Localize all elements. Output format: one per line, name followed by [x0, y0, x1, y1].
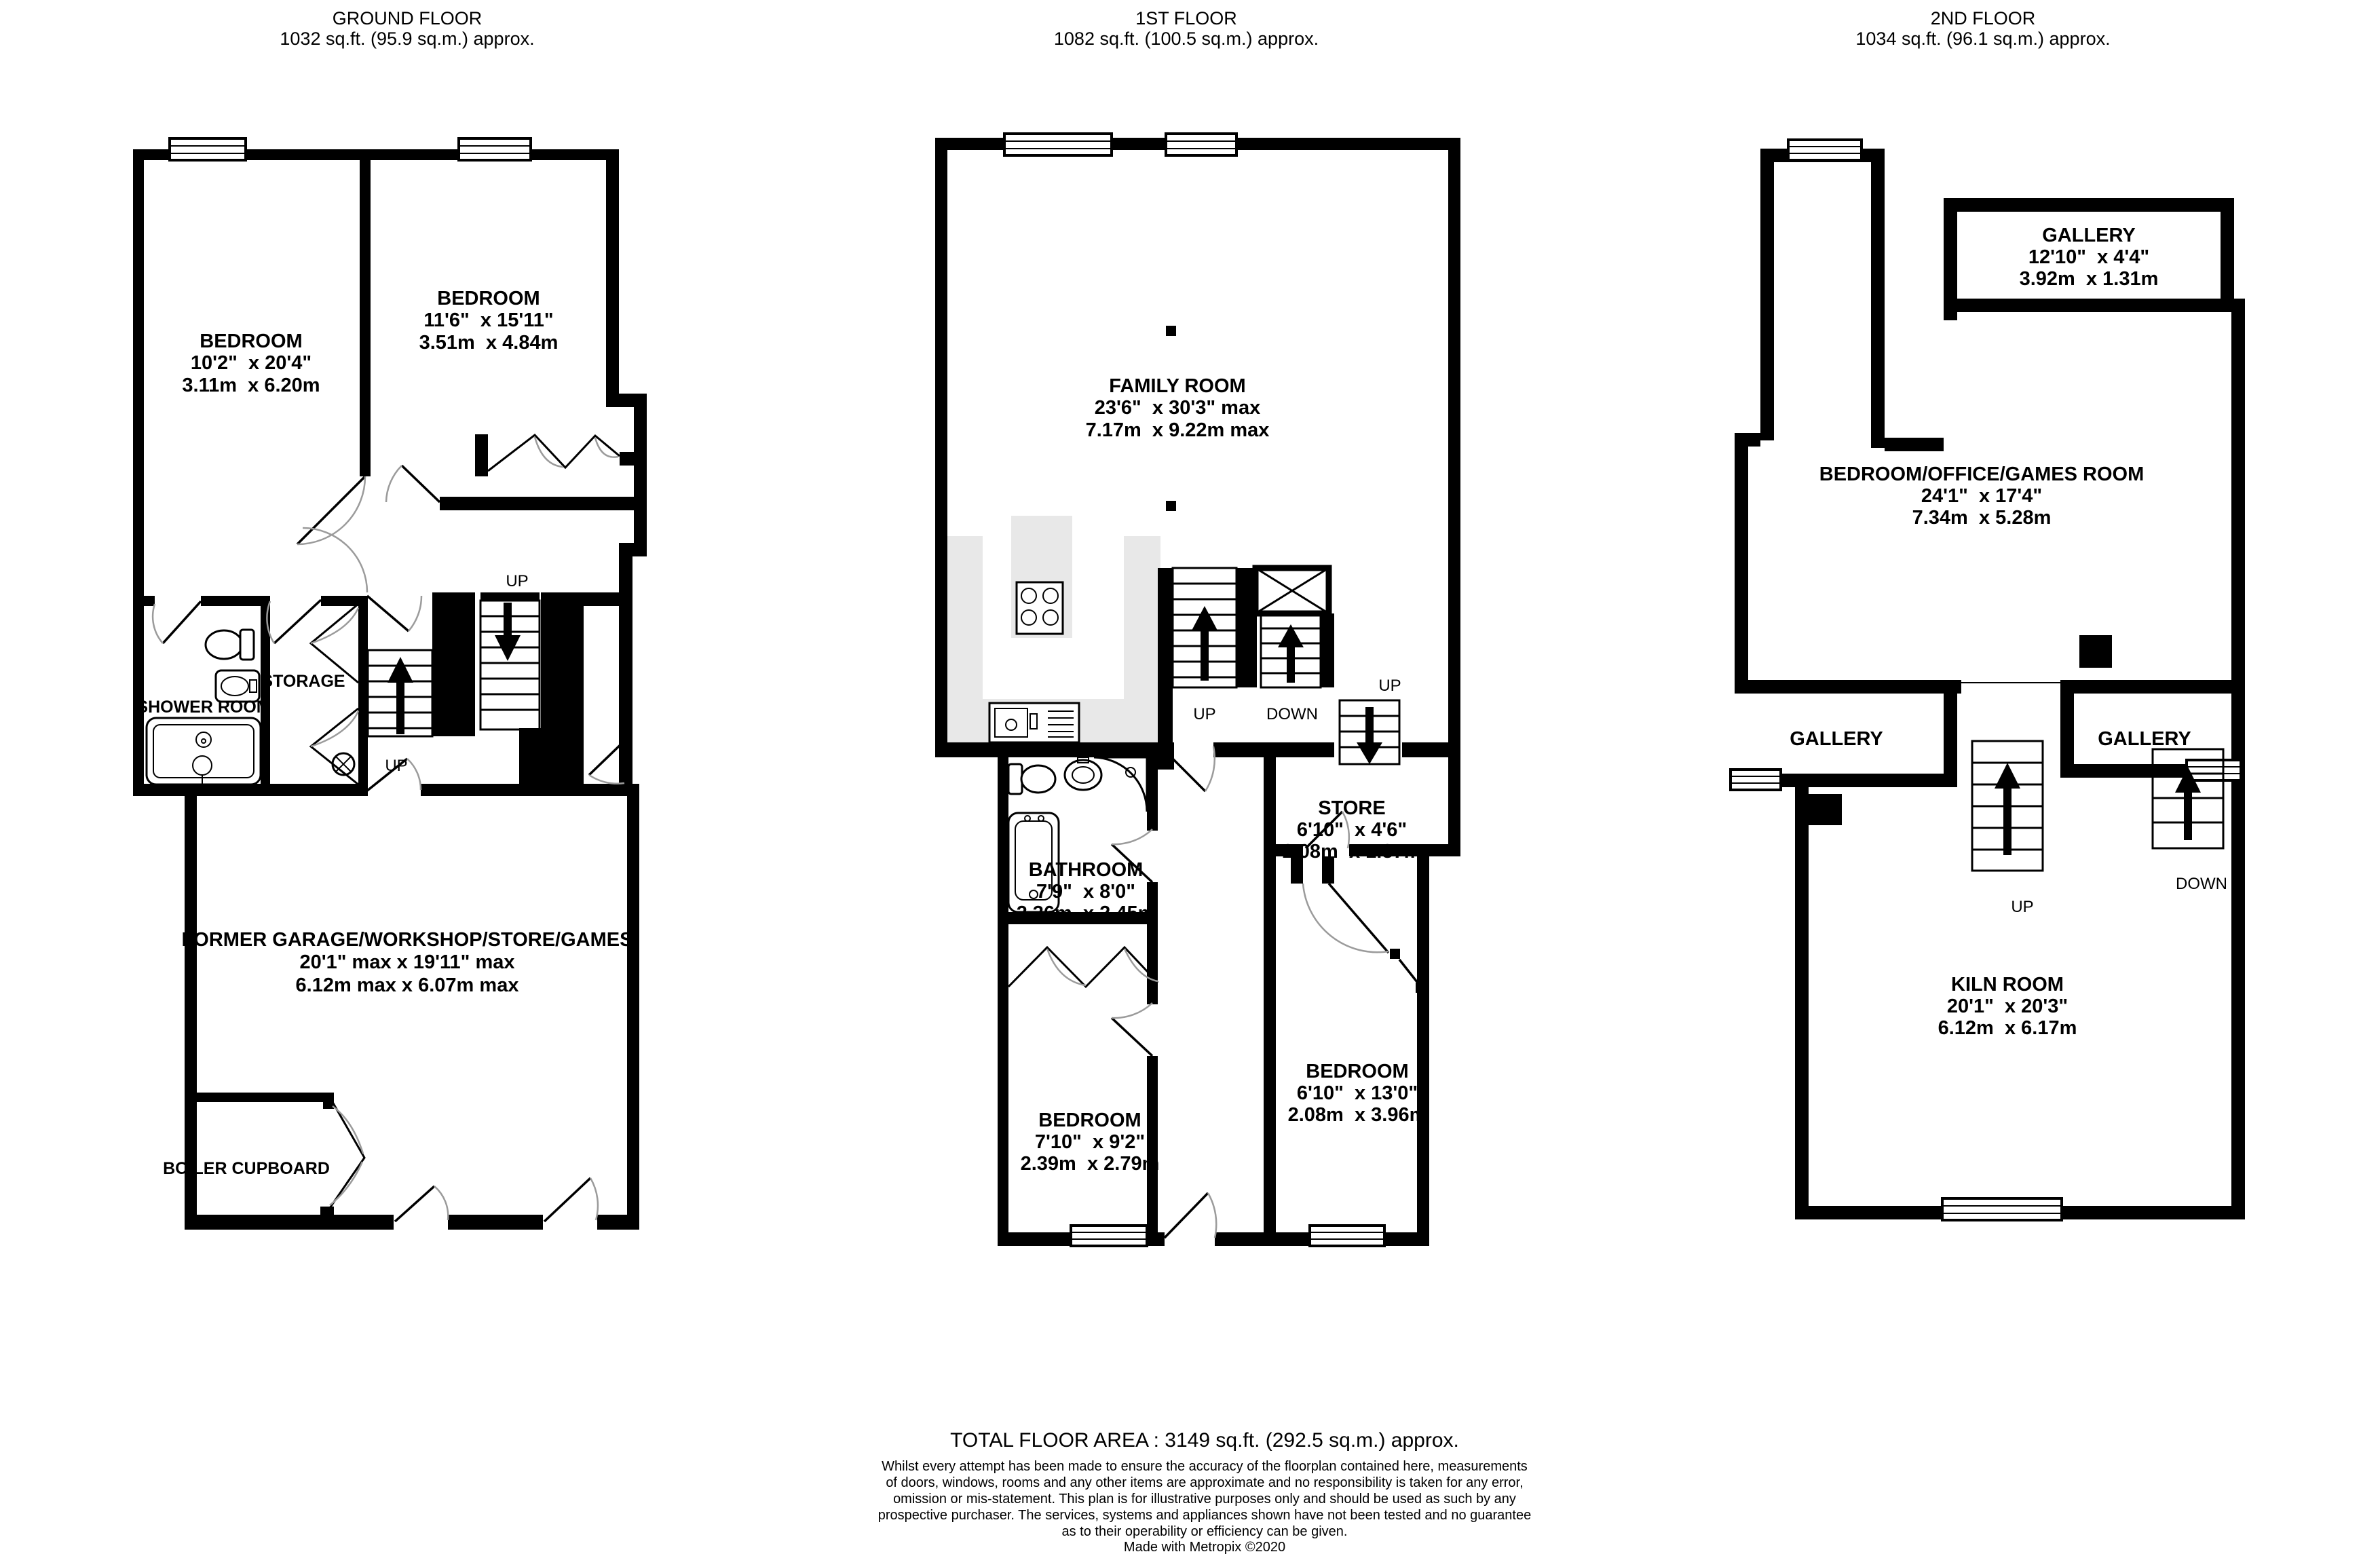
kitchen-sink-icon [989, 703, 1079, 742]
room-label: BATHROOM [1029, 859, 1144, 881]
stair-label: UP [1378, 677, 1401, 695]
ground-walls [133, 149, 647, 1230]
shower-tray-icon [147, 718, 261, 784]
stair-label: DOWN [2176, 875, 2227, 893]
room-label: BOILER CUPBOARD [163, 1159, 330, 1178]
room-label: GALLERY [2042, 225, 2135, 246]
first-floor-title: 1ST FLOOR [1135, 8, 1237, 29]
corner-shower-icon [1094, 757, 1147, 812]
window-icon [1731, 770, 1781, 790]
window-icon [1788, 140, 1862, 160]
room-label: BEDROOM [1306, 1061, 1408, 1082]
floor-plan-second: 2ND FLOOR 1034 sq.ft. (96.1 sq.m.) appro… [1731, 8, 2245, 1220]
basin-icon [1065, 757, 1101, 790]
staircase-icon [480, 601, 540, 729]
room-label: GALLERY [2098, 728, 2191, 750]
room-label: SHOWER ROOM [136, 698, 270, 717]
window-icon [170, 138, 246, 160]
staircase-icon [1173, 568, 1236, 687]
room-label: BEDROOM [437, 288, 540, 309]
first-floor-area: 1082 sq.ft. (100.5 sq.m.) approx. [1054, 29, 1319, 49]
stair-label: UP [506, 572, 528, 590]
disclaimer-line: Whilst every attempt has been made to en… [882, 1459, 1528, 1474]
room-label: BEDROOM [1038, 1110, 1141, 1131]
stair-label: UP [1193, 705, 1215, 723]
disclaimer-line: of doors, windows, rooms and any other i… [886, 1475, 1523, 1490]
credit-line: Made with Metropix ©2020 [1124, 1540, 1285, 1554]
closet-door-icon [1008, 947, 1158, 987]
hob-icon [1017, 582, 1063, 634]
room-label: STORE [1318, 797, 1385, 819]
room-dim-metric: 2.08m x 1.37m [1283, 841, 1422, 863]
toilet-icon [206, 630, 254, 660]
room-dim-metric: 6.12m x 6.17m [1938, 1017, 2077, 1039]
room-label: BEDROOM [200, 330, 302, 352]
footer: TOTAL FLOOR AREA : 3149 sq.ft. (292.5 sq… [878, 1429, 1531, 1554]
disclaimer-line: prospective purchaser. The services, sys… [878, 1508, 1531, 1523]
stair-label: UP [2011, 898, 2033, 916]
floor-plan-ground: GROUND FLOOR 1032 sq.ft. (95.9 sq.m.) ap… [133, 8, 647, 1230]
window-icon [1166, 134, 1236, 155]
staircase-icon [1261, 613, 1321, 687]
window-icon [1310, 1226, 1384, 1246]
ground-floor-title: GROUND FLOOR [333, 8, 483, 29]
room-dim-metric: 2.36m x 2.45m [1017, 903, 1156, 924]
room-dim-metric: 7.17m x 9.22m max [1086, 419, 1270, 441]
room-label: FAMILY ROOM [1109, 375, 1245, 397]
floor-plan-first: 1ST FLOOR 1082 sq.ft. (100.5 sq.m.) appr… [935, 8, 1460, 1246]
staircase-icon [1972, 741, 2043, 871]
room-dim-imperial: 20'1" x 20'3" [1947, 996, 2068, 1017]
room-dim-metric: 6.12m max x 6.07m max [296, 974, 519, 996]
total-floor-area: TOTAL FLOOR AREA : 3149 sq.ft. (292.5 sq… [950, 1429, 1459, 1452]
room-dim-imperial: 11'6" x 15'11" [423, 309, 553, 331]
room-dim-metric: 3.11m x 6.20m [182, 375, 320, 396]
toilet-icon [1008, 764, 1055, 794]
second-walls [1735, 149, 2245, 1219]
room-dim-imperial: 10'2" x 20'4" [191, 352, 311, 374]
disclaimer-line: omission or mis-statement. This plan is … [893, 1492, 1516, 1506]
door-arc-icon [153, 466, 626, 1221]
floorplan-sheet: GROUND FLOOR 1032 sq.ft. (95.9 sq.m.) ap… [0, 0, 2380, 1554]
window-icon [2187, 760, 2241, 780]
room-label: KILN ROOM [1951, 974, 2064, 996]
room-dim-imperial: 7'9" x 8'0" [1036, 881, 1135, 903]
room-dim-imperial: 24'1" x 17'4" [1921, 485, 2042, 507]
stair-label: DOWN [1266, 705, 1318, 723]
room-dim-metric: 3.51m x 4.84m [419, 332, 559, 354]
closet-door-icon [488, 435, 620, 471]
disclaimer-line: as to their operability or efficiency ca… [1062, 1524, 1348, 1539]
rooflight-void-icon [1255, 568, 1329, 613]
room-label: BEDROOM/OFFICE/GAMES ROOM [1819, 463, 2145, 485]
room-dim-metric: 2.39m x 2.79m [1021, 1153, 1160, 1175]
second-floor-area: 1034 sq.ft. (96.1 sq.m.) approx. [1855, 29, 2110, 49]
ground-floor-area: 1032 sq.ft. (95.9 sq.m.) approx. [280, 29, 534, 49]
room-dim-imperial: 6'10" x 13'0" [1297, 1082, 1418, 1104]
window-icon [459, 138, 531, 160]
room-dim-imperial: 12'10" x 4'4" [2028, 246, 2149, 268]
room-label: STORAGE [261, 672, 345, 691]
room-dim-imperial: 20'1" max x 19'11" max [299, 951, 514, 973]
room-dim-imperial: 23'6" x 30'3" max [1095, 397, 1260, 419]
stair-label: UP [385, 757, 407, 775]
room-dim-imperial: 6'10" x 4'6" [1297, 819, 1407, 841]
room-dim-metric: 2.08m x 3.96m [1288, 1104, 1427, 1126]
second-floor-title: 2ND FLOOR [1931, 8, 2036, 29]
window-icon [1942, 1198, 2062, 1220]
staircase-icon [368, 650, 432, 736]
room-dim-imperial: 7'10" x 9'2" [1035, 1131, 1145, 1153]
room-label: GALLERY [1790, 728, 1883, 750]
window-icon [1071, 1226, 1147, 1246]
room-label: FORMER GARAGE/WORKSHOP/STORE/GAMES [182, 929, 633, 951]
room-dim-metric: 7.34m x 5.28m [1912, 507, 2052, 529]
window-icon [1004, 134, 1112, 155]
staircase-icon [1340, 700, 1399, 764]
room-dim-metric: 3.92m x 1.31m [2020, 268, 2159, 290]
